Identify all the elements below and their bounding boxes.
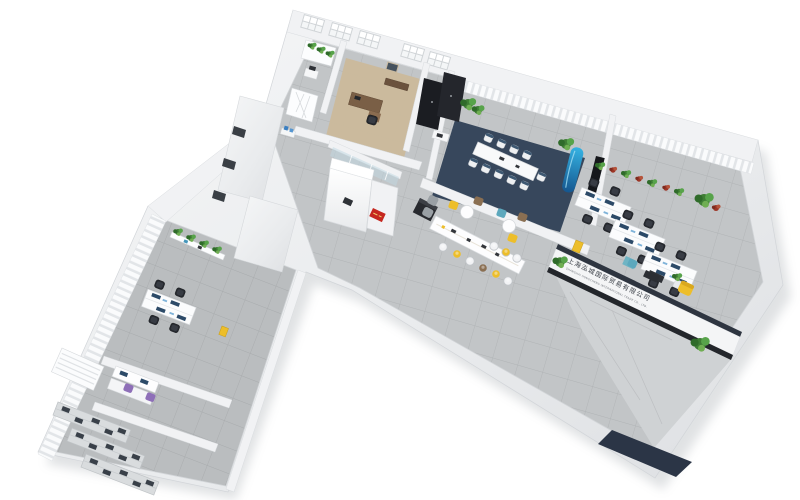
bar-stool — [492, 270, 500, 278]
bar-stool — [479, 264, 487, 272]
bar-stool — [513, 254, 521, 262]
floorplan-render: 上海泓城国际贸易有限公司 SHANGHAI HONGCHENG INTERNAT… — [0, 0, 800, 500]
bar-stool — [453, 250, 461, 258]
bar-stool — [502, 248, 510, 256]
bar-stool — [466, 257, 474, 265]
reception-desk-return — [367, 180, 398, 236]
bar-stool — [490, 242, 498, 250]
bar-stool — [439, 243, 447, 251]
bar-stool — [504, 277, 512, 285]
floorplan-canvas: 上海泓城国际贸易有限公司 SHANGHAI HONGCHENG INTERNAT… — [0, 0, 800, 500]
